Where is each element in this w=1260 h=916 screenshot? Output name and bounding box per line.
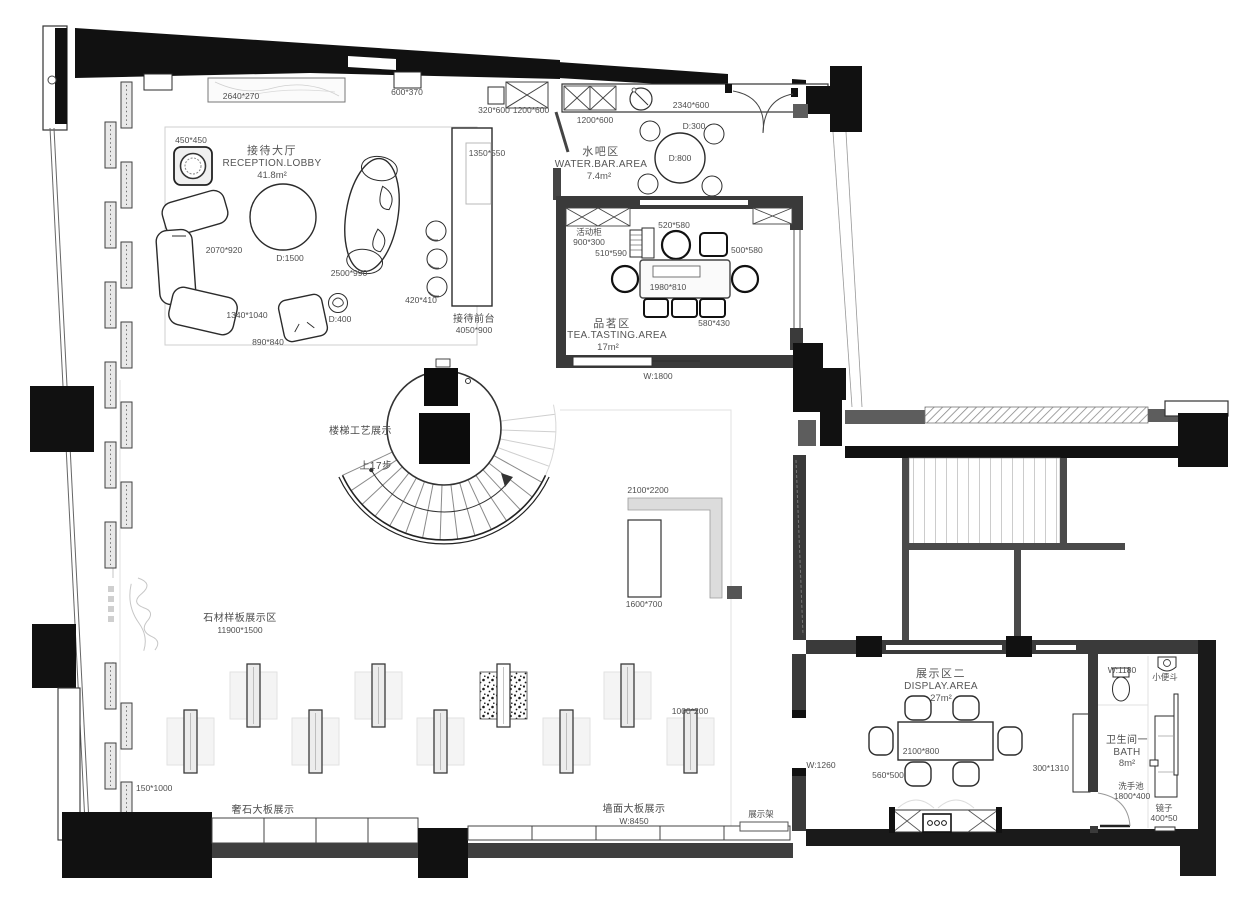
display2-table-dim: 2100*800 bbox=[903, 746, 940, 756]
south-wall: 奢石大板展示 W:7450 墙面大板展示 W:8450 展示架 bbox=[62, 802, 793, 878]
desk-inner-dim: 1350*550 bbox=[469, 148, 506, 158]
round-table-dim: D:1500 bbox=[276, 253, 304, 263]
basin-name: 洗手池 bbox=[1118, 781, 1144, 791]
tea-tasting-room: 活动柜 900*300 510*590 520*580 500*580 1980… bbox=[556, 196, 803, 381]
display2-title-en: DISPLAY.AREA bbox=[904, 681, 978, 692]
bar-stool-dim: D:300 bbox=[683, 121, 706, 131]
water-bar-title-cn: 水吧区 bbox=[582, 145, 620, 158]
side-table-dim: D:400 bbox=[329, 314, 352, 324]
tea-side-cabinet bbox=[630, 228, 654, 258]
floor-plan-drawing: 150*1000 2640*270 600*370 320*600 1200*6… bbox=[0, 0, 1260, 916]
side-table bbox=[329, 294, 348, 313]
toilet-dim: W:1180 bbox=[1108, 665, 1137, 675]
display2-title-cn: 展示区二 bbox=[916, 667, 966, 680]
mirror-name: 镜子 bbox=[1155, 803, 1173, 813]
bath-title-cn: 卫生间一 bbox=[1106, 733, 1148, 746]
desk-stool-dim: 420*410 bbox=[405, 295, 437, 305]
chaise-lounge bbox=[337, 153, 407, 278]
mobile-cabinet-dim: 900*300 bbox=[573, 237, 605, 247]
display2-door-width: W:1260 bbox=[806, 760, 835, 770]
side-cab-dim: 510*590 bbox=[595, 248, 627, 258]
top-fixtures: 2640*270 600*370 320*600 1200*600 bbox=[144, 72, 549, 115]
tea-table-dim: 1980*810 bbox=[650, 282, 687, 292]
speckled-stand bbox=[480, 664, 527, 727]
tea-chair-right bbox=[732, 266, 758, 292]
tea-stool-dim: 580*430 bbox=[698, 318, 730, 328]
stair-steps: 上17步 bbox=[359, 460, 392, 472]
tea-stools bbox=[644, 299, 725, 317]
reception-title-cn: 接待大厅 bbox=[247, 143, 297, 157]
rack-label: 展示架 bbox=[748, 809, 774, 819]
sofa-dim: 2070*920 bbox=[206, 245, 243, 255]
tea-title-cn: 品茗区 bbox=[593, 317, 631, 330]
bar-cabinet-dim: 1200*600 bbox=[577, 115, 614, 125]
display2-counter bbox=[889, 800, 1002, 833]
tea-chair-square-dim: 500*580 bbox=[731, 245, 763, 255]
desk-name: 接待前台 bbox=[453, 312, 495, 325]
tea-chair-left bbox=[612, 266, 638, 292]
display2-chair-dim: 560*500 bbox=[872, 770, 904, 780]
lux-slab-title: 奢石大板展示 bbox=[232, 803, 295, 816]
display2-area-val: 27m² bbox=[930, 693, 952, 704]
left-wall bbox=[30, 26, 94, 843]
reception-desk: 1350*550 420*410 接待前台 4050*900 bbox=[405, 128, 505, 335]
stone-title: 石材样板展示区 bbox=[203, 611, 277, 624]
straight-stair bbox=[902, 458, 1125, 640]
bathroom: W:1180 小便斗 卫生间一 BATH 8m² 洗手池 1800*400 镜子… bbox=[1088, 654, 1178, 833]
chaise-dim: 2500*990 bbox=[331, 268, 368, 278]
brand-signature bbox=[108, 566, 163, 674]
cabinet-a-dim: 320*600 bbox=[478, 105, 510, 115]
island-dim: 2100*2200 bbox=[627, 485, 668, 495]
bath-area-val: 8m² bbox=[1119, 758, 1135, 769]
cabinet-b-dim: 1200*600 bbox=[513, 105, 550, 115]
tea-opening-dim: W:1800 bbox=[643, 371, 672, 381]
pot-dim: 450*450 bbox=[175, 135, 207, 145]
top-wall bbox=[75, 28, 806, 92]
stone-sample-area: 石材样板展示区 11900*1500 1000*200 bbox=[167, 611, 714, 773]
mirror-dim: 400*50 bbox=[1151, 813, 1178, 823]
water-bar-title-en: WATER.BAR.AREA bbox=[555, 159, 648, 170]
floor-plan-canvas: 150*1000 2640*270 600*370 320*600 1200*6… bbox=[0, 0, 1260, 916]
stand-dim: 1000*200 bbox=[672, 706, 709, 716]
tea-chair-sq-top bbox=[700, 233, 727, 256]
rug-dim: 1340*1040 bbox=[226, 310, 267, 320]
wall-slab-width: W:8450 bbox=[619, 816, 648, 826]
tea-chair-top bbox=[662, 231, 690, 259]
wall-slab-title: 墙面大板展示 bbox=[603, 802, 666, 815]
urinal bbox=[1158, 657, 1176, 671]
desk-dim: 4050*900 bbox=[456, 325, 493, 335]
water-bar-area-val: 7.4m² bbox=[587, 171, 611, 182]
display2-cabinet-dim: 300*1310 bbox=[1033, 763, 1070, 773]
pouf bbox=[277, 293, 329, 343]
display2-cabinet bbox=[1073, 714, 1090, 792]
marble-counter-dim: 2640*270 bbox=[223, 91, 260, 101]
right-corridor bbox=[793, 343, 1228, 640]
box-dim: 600*370 bbox=[391, 87, 423, 97]
bath-title-en: BATH bbox=[1113, 747, 1140, 758]
bar-counter-dim: 2340*600 bbox=[673, 100, 710, 110]
mobile-cabinet-name: 活动柜 bbox=[576, 227, 602, 237]
tea-area-val: 17m² bbox=[597, 342, 619, 353]
reception-title-en: RECEPTION.LOBBY bbox=[223, 158, 322, 169]
tea-chair-round-dim: 520*580 bbox=[658, 220, 690, 230]
urinal-label: 小便斗 bbox=[1152, 672, 1178, 682]
stair-title: 楼梯工艺展示 bbox=[329, 424, 392, 437]
pouf-dim: 890*840 bbox=[252, 337, 284, 347]
reception-area: 41.8m² bbox=[257, 170, 287, 181]
basin-dim: 1800*400 bbox=[1114, 791, 1151, 801]
panel-dim-label: 150*1000 bbox=[136, 783, 173, 793]
escalator-strip bbox=[925, 407, 1148, 423]
round-table bbox=[250, 184, 316, 250]
island-slab-dim: 1600*700 bbox=[626, 599, 663, 609]
left-display-panels: 150*1000 bbox=[105, 82, 173, 828]
bar-table-dim: D:800 bbox=[669, 153, 692, 163]
stone-dim: 11900*1500 bbox=[217, 625, 262, 635]
tea-title-en: TEA.TASTING.AREA bbox=[567, 330, 667, 341]
island-counter: 2100*2200 1600*700 bbox=[626, 485, 742, 609]
vanity bbox=[1150, 694, 1178, 797]
